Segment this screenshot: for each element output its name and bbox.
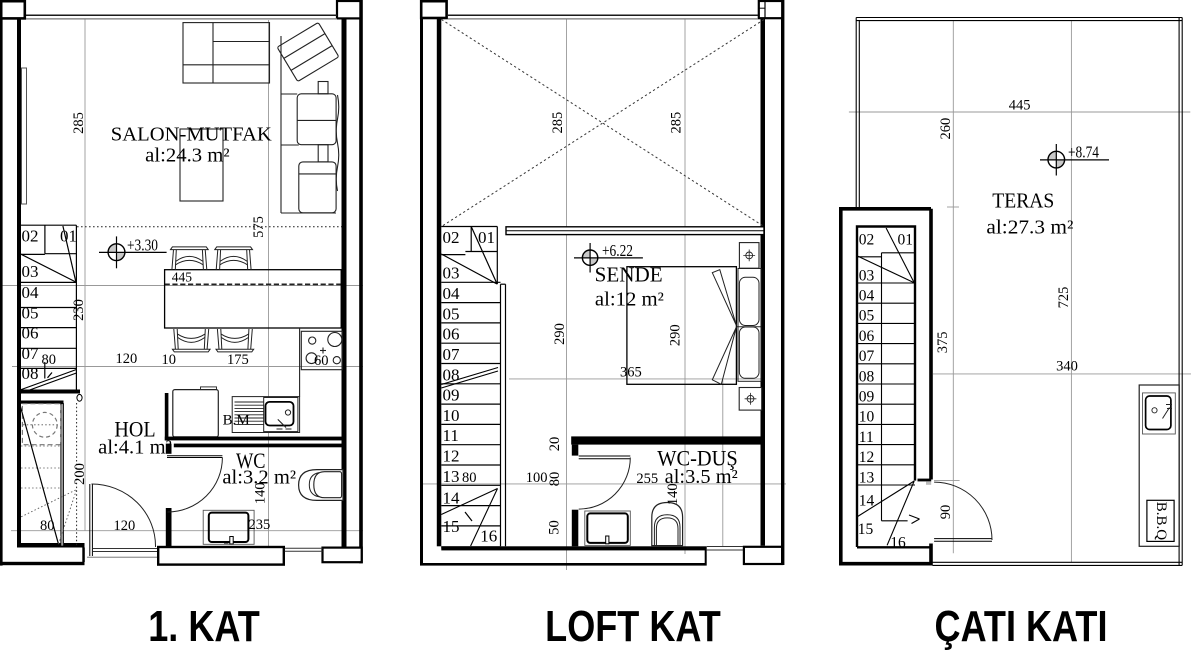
svg-text:285: 285 bbox=[668, 112, 684, 134]
svg-text:04: 04 bbox=[443, 284, 461, 303]
svg-text:07: 07 bbox=[859, 348, 875, 365]
svg-text:08: 08 bbox=[22, 364, 39, 383]
svg-text:B.M: B.M bbox=[223, 413, 250, 429]
svg-text:ÇATI KATI: ÇATI KATI bbox=[935, 602, 1108, 651]
svg-text:03: 03 bbox=[443, 264, 460, 283]
svg-text:285: 285 bbox=[71, 112, 87, 134]
svg-text:365: 365 bbox=[620, 365, 642, 381]
svg-text:340: 340 bbox=[1056, 359, 1078, 375]
svg-text:375: 375 bbox=[935, 332, 951, 354]
svg-text:07: 07 bbox=[22, 344, 40, 363]
svg-text:14: 14 bbox=[859, 493, 875, 510]
svg-text:SENDE: SENDE bbox=[595, 263, 663, 287]
svg-text:TERAS: TERAS bbox=[992, 189, 1054, 213]
svg-text:16: 16 bbox=[480, 527, 497, 546]
svg-text:10: 10 bbox=[859, 409, 875, 426]
svg-text:260: 260 bbox=[938, 118, 954, 140]
svg-text:+3.30: +3.30 bbox=[127, 236, 158, 255]
svg-text:03: 03 bbox=[859, 268, 875, 285]
svg-text:08: 08 bbox=[443, 365, 460, 384]
svg-text:02: 02 bbox=[22, 227, 39, 246]
svg-text:01: 01 bbox=[60, 227, 77, 246]
svg-text:255: 255 bbox=[636, 471, 658, 487]
svg-text:16: 16 bbox=[890, 535, 906, 552]
svg-text:445: 445 bbox=[1009, 98, 1031, 114]
svg-text:11: 11 bbox=[443, 426, 459, 445]
svg-text:80: 80 bbox=[42, 352, 57, 368]
svg-text:+6.22: +6.22 bbox=[602, 241, 633, 260]
svg-text:140: 140 bbox=[665, 483, 681, 505]
svg-text:02: 02 bbox=[443, 228, 460, 247]
svg-text:LOFT KAT: LOFT KAT bbox=[545, 602, 721, 651]
svg-text:01: 01 bbox=[478, 228, 495, 247]
svg-text:14: 14 bbox=[443, 489, 461, 508]
svg-text:200: 200 bbox=[72, 463, 88, 485]
svg-text:13: 13 bbox=[443, 467, 460, 486]
svg-text:03: 03 bbox=[22, 262, 39, 281]
svg-text:13: 13 bbox=[859, 469, 875, 486]
svg-text:285: 285 bbox=[550, 112, 566, 134]
svg-text:02: 02 bbox=[859, 232, 875, 249]
svg-text:al:4.1 m²: al:4.1 m² bbox=[98, 437, 172, 459]
svg-text:60: 60 bbox=[314, 353, 329, 369]
svg-text:al:24.3 m²: al:24.3 m² bbox=[145, 145, 230, 167]
svg-text:80: 80 bbox=[547, 472, 563, 487]
svg-text:175: 175 bbox=[227, 352, 249, 368]
svg-text:04: 04 bbox=[22, 283, 40, 302]
svg-text:15: 15 bbox=[858, 521, 874, 538]
svg-text:290: 290 bbox=[667, 324, 683, 346]
svg-text:SALON-MUTFAK: SALON-MUTFAK bbox=[111, 125, 272, 146]
svg-text:1. KAT: 1. KAT bbox=[148, 602, 260, 651]
svg-text:445: 445 bbox=[172, 270, 193, 285]
svg-text:290: 290 bbox=[552, 323, 568, 345]
svg-text:10: 10 bbox=[443, 406, 460, 425]
svg-text:12: 12 bbox=[443, 447, 460, 466]
svg-text:12: 12 bbox=[859, 449, 875, 466]
svg-text:120: 120 bbox=[116, 351, 138, 367]
svg-text:100: 100 bbox=[526, 470, 548, 486]
svg-text:09: 09 bbox=[443, 386, 460, 405]
svg-text:al:12 m²: al:12 m² bbox=[595, 289, 664, 311]
svg-text:08: 08 bbox=[859, 368, 875, 385]
svg-text:al:27.3 m²: al:27.3 m² bbox=[986, 217, 1073, 239]
svg-text:01: 01 bbox=[898, 232, 914, 249]
svg-text:235: 235 bbox=[249, 517, 271, 533]
svg-text:725: 725 bbox=[1056, 287, 1072, 309]
svg-text:50: 50 bbox=[547, 520, 563, 535]
svg-text:B.B.Q: B.B.Q bbox=[1153, 502, 1169, 541]
svg-text:20: 20 bbox=[547, 437, 563, 452]
svg-text:05: 05 bbox=[443, 304, 460, 323]
svg-text:07: 07 bbox=[443, 345, 461, 364]
svg-text:11: 11 bbox=[859, 429, 874, 446]
svg-text:15: 15 bbox=[443, 517, 460, 536]
svg-text:09: 09 bbox=[859, 389, 875, 406]
svg-text:06: 06 bbox=[22, 324, 39, 343]
svg-text:230: 230 bbox=[71, 299, 87, 321]
svg-text:+8.74: +8.74 bbox=[1068, 143, 1099, 162]
svg-text:120: 120 bbox=[114, 518, 136, 534]
svg-text:575: 575 bbox=[251, 216, 267, 238]
svg-text:04: 04 bbox=[859, 288, 875, 305]
svg-text:90: 90 bbox=[938, 505, 954, 520]
svg-text:80: 80 bbox=[40, 518, 55, 534]
svg-text:06: 06 bbox=[443, 325, 460, 344]
svg-text:05: 05 bbox=[22, 304, 39, 323]
svg-text:06: 06 bbox=[859, 328, 875, 345]
svg-text:10: 10 bbox=[162, 352, 177, 368]
svg-text:140: 140 bbox=[252, 482, 268, 504]
svg-text:05: 05 bbox=[859, 308, 875, 325]
svg-text:80: 80 bbox=[462, 470, 477, 486]
